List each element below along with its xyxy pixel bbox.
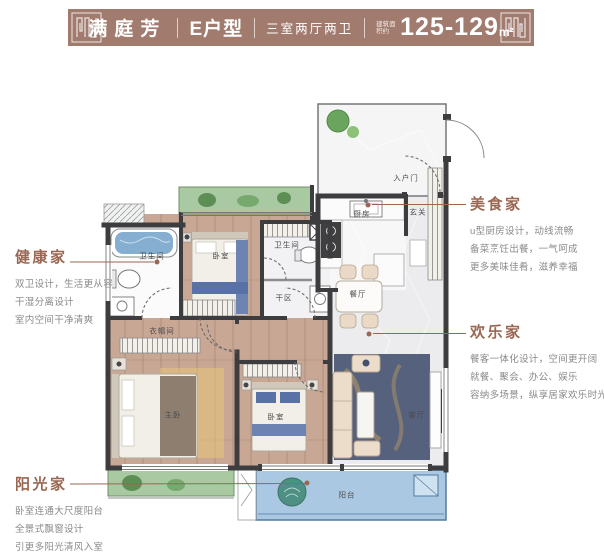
annotation-line: 双卫设计，生活更从容	[15, 276, 113, 294]
room-label-bedroom-bottom: 卧室	[268, 412, 285, 423]
room-label-bath-mid: 卫生间	[274, 240, 300, 251]
room-label-dining: 餐厅	[350, 289, 367, 300]
room-label-bedroom-mid: 卧室	[213, 251, 230, 262]
annotation-line: 卧室连通大尺度阳台	[15, 503, 103, 521]
room-label-living: 客厅	[409, 410, 426, 421]
annotation-gourmet: 美食家 u型厨房设计，动线流畅 备菜烹饪出餐，一气呵成 更多美味佳肴，滋养幸福	[470, 193, 578, 277]
ac-platform	[238, 470, 256, 520]
annotation-title: 健康家	[15, 246, 113, 267]
closet-shelf	[120, 338, 200, 353]
ac-platform-top	[104, 204, 144, 224]
annotation-line: 容纳多场景，纵享居家欢乐时光	[470, 387, 604, 405]
vanity-sink	[110, 297, 134, 316]
annotation-line: 就餐、聚会、办公、娱乐	[470, 369, 604, 387]
tv-console	[430, 372, 441, 448]
annotation-line: 引更多阳光清风入室	[15, 539, 103, 554]
room-label-kitchen: 厨房	[354, 209, 371, 220]
room-label-balcony: 阳台	[339, 490, 356, 501]
entry-door-swing	[446, 120, 484, 158]
sofa	[333, 372, 352, 458]
annotation-title: 美食家	[470, 193, 578, 214]
annotation-line: 备菜烹饪出餐，一气呵成	[470, 241, 578, 259]
headboard	[112, 374, 119, 458]
armchair	[354, 441, 380, 456]
balcony-plant	[278, 478, 306, 506]
room-label-master-bedroom: 主卧	[165, 410, 182, 421]
headboard	[252, 382, 306, 389]
room-label-dry-area: 干区	[276, 293, 293, 304]
laundry-cabinet	[263, 223, 309, 237]
annotation-line: 餐客一体化设计，空间更开阔	[470, 351, 604, 369]
annotation-line: 干湿分离设计	[15, 294, 113, 312]
annotation-line: u型厨房设计，动线流畅	[470, 223, 578, 241]
annotation-happy: 欢乐家 餐客一体化设计，空间更开阔 就餐、聚会、办公、娱乐 容纳多场景，纵享居家…	[470, 321, 604, 405]
bedroom-mid-furniture	[183, 232, 248, 316]
annotation-health: 健康家 双卫设计，生活更从容 干湿分离设计 室内空间干净清爽	[15, 246, 113, 330]
room-label-foyer: 玄关	[410, 207, 427, 218]
shoe-cabinet	[428, 168, 442, 280]
annotation-title: 欢乐家	[470, 321, 604, 342]
room-label-entry-door: 入户门	[393, 173, 419, 184]
toilet	[118, 270, 140, 288]
floorplan-page: 满庭芳 E户型 三室两厅两卫 建筑面积约 125-129 m²	[0, 0, 604, 554]
wardrobe	[183, 300, 235, 316]
coffee-table	[357, 392, 374, 438]
annotation-line: 更多美味佳肴，滋养幸福	[470, 259, 578, 277]
annotation-sunshine: 阳光家 卧室连通大尺度阳台 全景式飘窗设计 引更多阳光清风入室	[15, 473, 103, 554]
annotation-line: 室内空间干净清爽	[15, 312, 113, 330]
room-label-bath-left: 卫生间	[139, 251, 165, 262]
room-label-closet: 衣帽间	[149, 326, 175, 337]
annotation-line: 全景式飘窗设计	[15, 521, 103, 539]
foyer-bench	[410, 240, 426, 266]
wardrobe	[243, 364, 301, 377]
annotation-title: 阳光家	[15, 473, 103, 494]
headboard	[192, 232, 248, 239]
living-furniture	[333, 354, 444, 460]
